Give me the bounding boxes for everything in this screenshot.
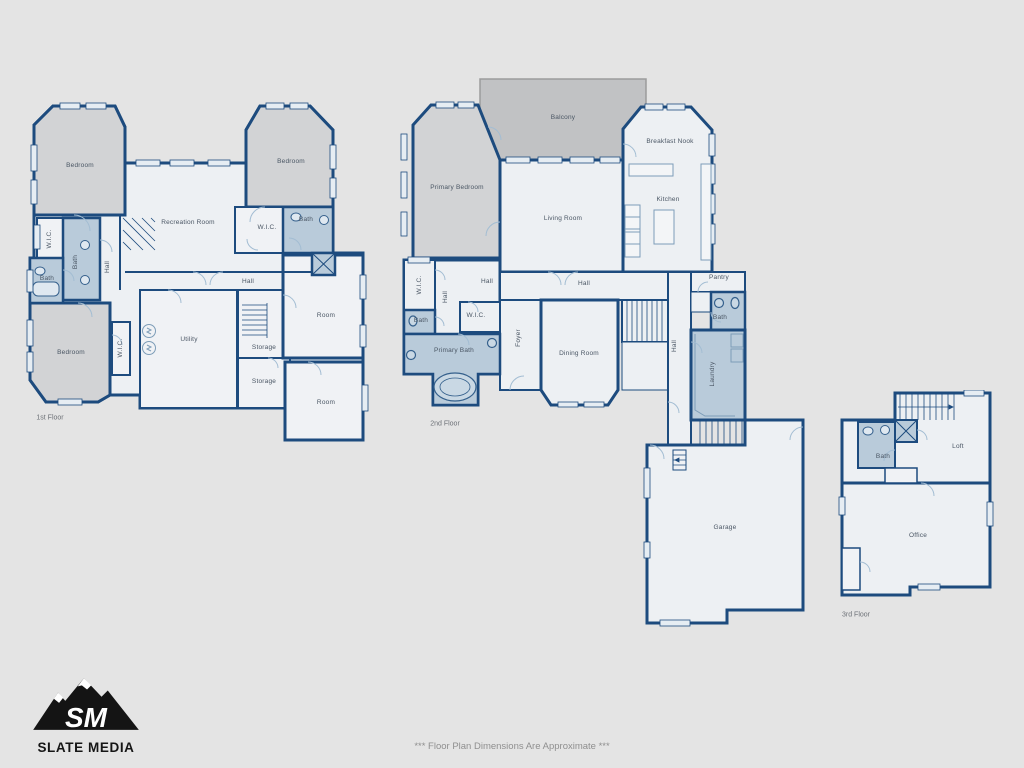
room-label-foyer: Foyer bbox=[516, 329, 523, 347]
room-label-bath-e: Bath bbox=[713, 315, 727, 322]
room-label-hall-w: Hall bbox=[443, 291, 450, 303]
room-label-dining-room: Dining Room bbox=[559, 351, 599, 358]
room-label-wic-center: W.I.C. bbox=[467, 313, 486, 320]
room-label-room-east-lower: Room bbox=[317, 400, 335, 407]
room-label-bath-w: Bath bbox=[73, 255, 80, 269]
toilet-icon bbox=[731, 298, 739, 309]
room-label-storage-lower: Storage bbox=[252, 379, 276, 386]
sink-icon bbox=[715, 299, 724, 308]
room-label-laundry: Laundry bbox=[710, 362, 717, 387]
sink-icon bbox=[320, 216, 329, 225]
room-label-wic-sw: W.I.C. bbox=[118, 339, 125, 358]
closet bbox=[842, 548, 860, 590]
floorplan-2nd-floor: Balcony Primary Bedroom Living Room Brea… bbox=[398, 72, 810, 637]
sink-icon bbox=[488, 339, 497, 348]
floorplan-3rd-floor-drawing bbox=[838, 390, 996, 625]
floor-name-2nd: 2nd Floor bbox=[430, 421, 460, 428]
room-label-utility: Utility bbox=[180, 337, 197, 344]
floorplan-1st-floor: Bedroom Recreation Room Bedroom W.I.C. B… bbox=[18, 90, 383, 445]
room-label-primary-bedroom: Primary Bedroom bbox=[430, 185, 484, 192]
sink-icon bbox=[81, 276, 90, 285]
room-label-office: Office bbox=[909, 533, 927, 540]
room-label-hall-center: Hall bbox=[242, 279, 254, 286]
room-label-wic-w: W.I.C. bbox=[47, 230, 54, 249]
room-label-hall-e: Hall bbox=[672, 340, 679, 352]
sink-icon bbox=[81, 241, 90, 250]
room-label-hall-w: Hall bbox=[105, 261, 112, 273]
room-label-primary-bath: Primary Bath bbox=[434, 348, 474, 355]
room-label-pantry: Pantry bbox=[709, 275, 729, 282]
mountain-logo-icon: SM bbox=[24, 676, 148, 734]
floor-plan-page: Bedroom Recreation Room Bedroom W.I.C. B… bbox=[0, 0, 1024, 768]
floor-name-1st: 1st Floor bbox=[36, 415, 63, 422]
tub-icon bbox=[33, 282, 59, 296]
kitchen-island bbox=[654, 210, 674, 244]
room-label-bedroom-ne: Bedroom bbox=[277, 159, 305, 166]
room-label-recreation-room: Recreation Room bbox=[161, 220, 215, 227]
room-label-bedroom-sw: Bedroom bbox=[57, 350, 85, 357]
room-label-bath-sw: Bath bbox=[40, 276, 54, 283]
room-label-kitchen: Kitchen bbox=[656, 197, 679, 204]
room-label-loft: Loft bbox=[952, 444, 964, 451]
room-label-bath-w: Bath bbox=[414, 318, 428, 325]
garage-step-icon bbox=[673, 450, 686, 470]
room-label-storage-upper: Storage bbox=[252, 345, 276, 352]
room-label-room-east-upper: Room bbox=[317, 313, 335, 320]
room-label-bath: Bath bbox=[876, 454, 890, 461]
room-label-living-room: Living Room bbox=[544, 216, 582, 223]
sink-icon bbox=[881, 426, 890, 435]
sink-icon bbox=[407, 351, 416, 360]
closet bbox=[885, 468, 917, 483]
room-label-bath-ne: Bath bbox=[299, 217, 313, 224]
room-label-wic-ne: W.I.C. bbox=[258, 225, 277, 232]
room-label-bedroom-nw: Bedroom bbox=[66, 163, 94, 170]
floorplan-3rd-floor: Bath Loft Office 3rd Floor bbox=[838, 390, 996, 625]
floorplan-2nd-floor-drawing bbox=[398, 72, 810, 637]
room-label-hall-small: Hall bbox=[481, 279, 493, 286]
room-label-wic-nw: W.I.C. bbox=[417, 276, 424, 295]
toilet-icon bbox=[863, 427, 873, 435]
room-label-garage: Garage bbox=[714, 525, 737, 532]
disclaimer-text: *** Floor Plan Dimensions Are Approximat… bbox=[0, 741, 1024, 752]
floor-name-3rd: 3rd Floor bbox=[842, 612, 870, 619]
room-label-hall-center: Hall bbox=[578, 281, 590, 288]
room-label-balcony: Balcony bbox=[551, 115, 576, 122]
logo-monogram: SM bbox=[65, 702, 108, 733]
room-label-breakfast-nook: Breakfast Nook bbox=[646, 139, 693, 146]
